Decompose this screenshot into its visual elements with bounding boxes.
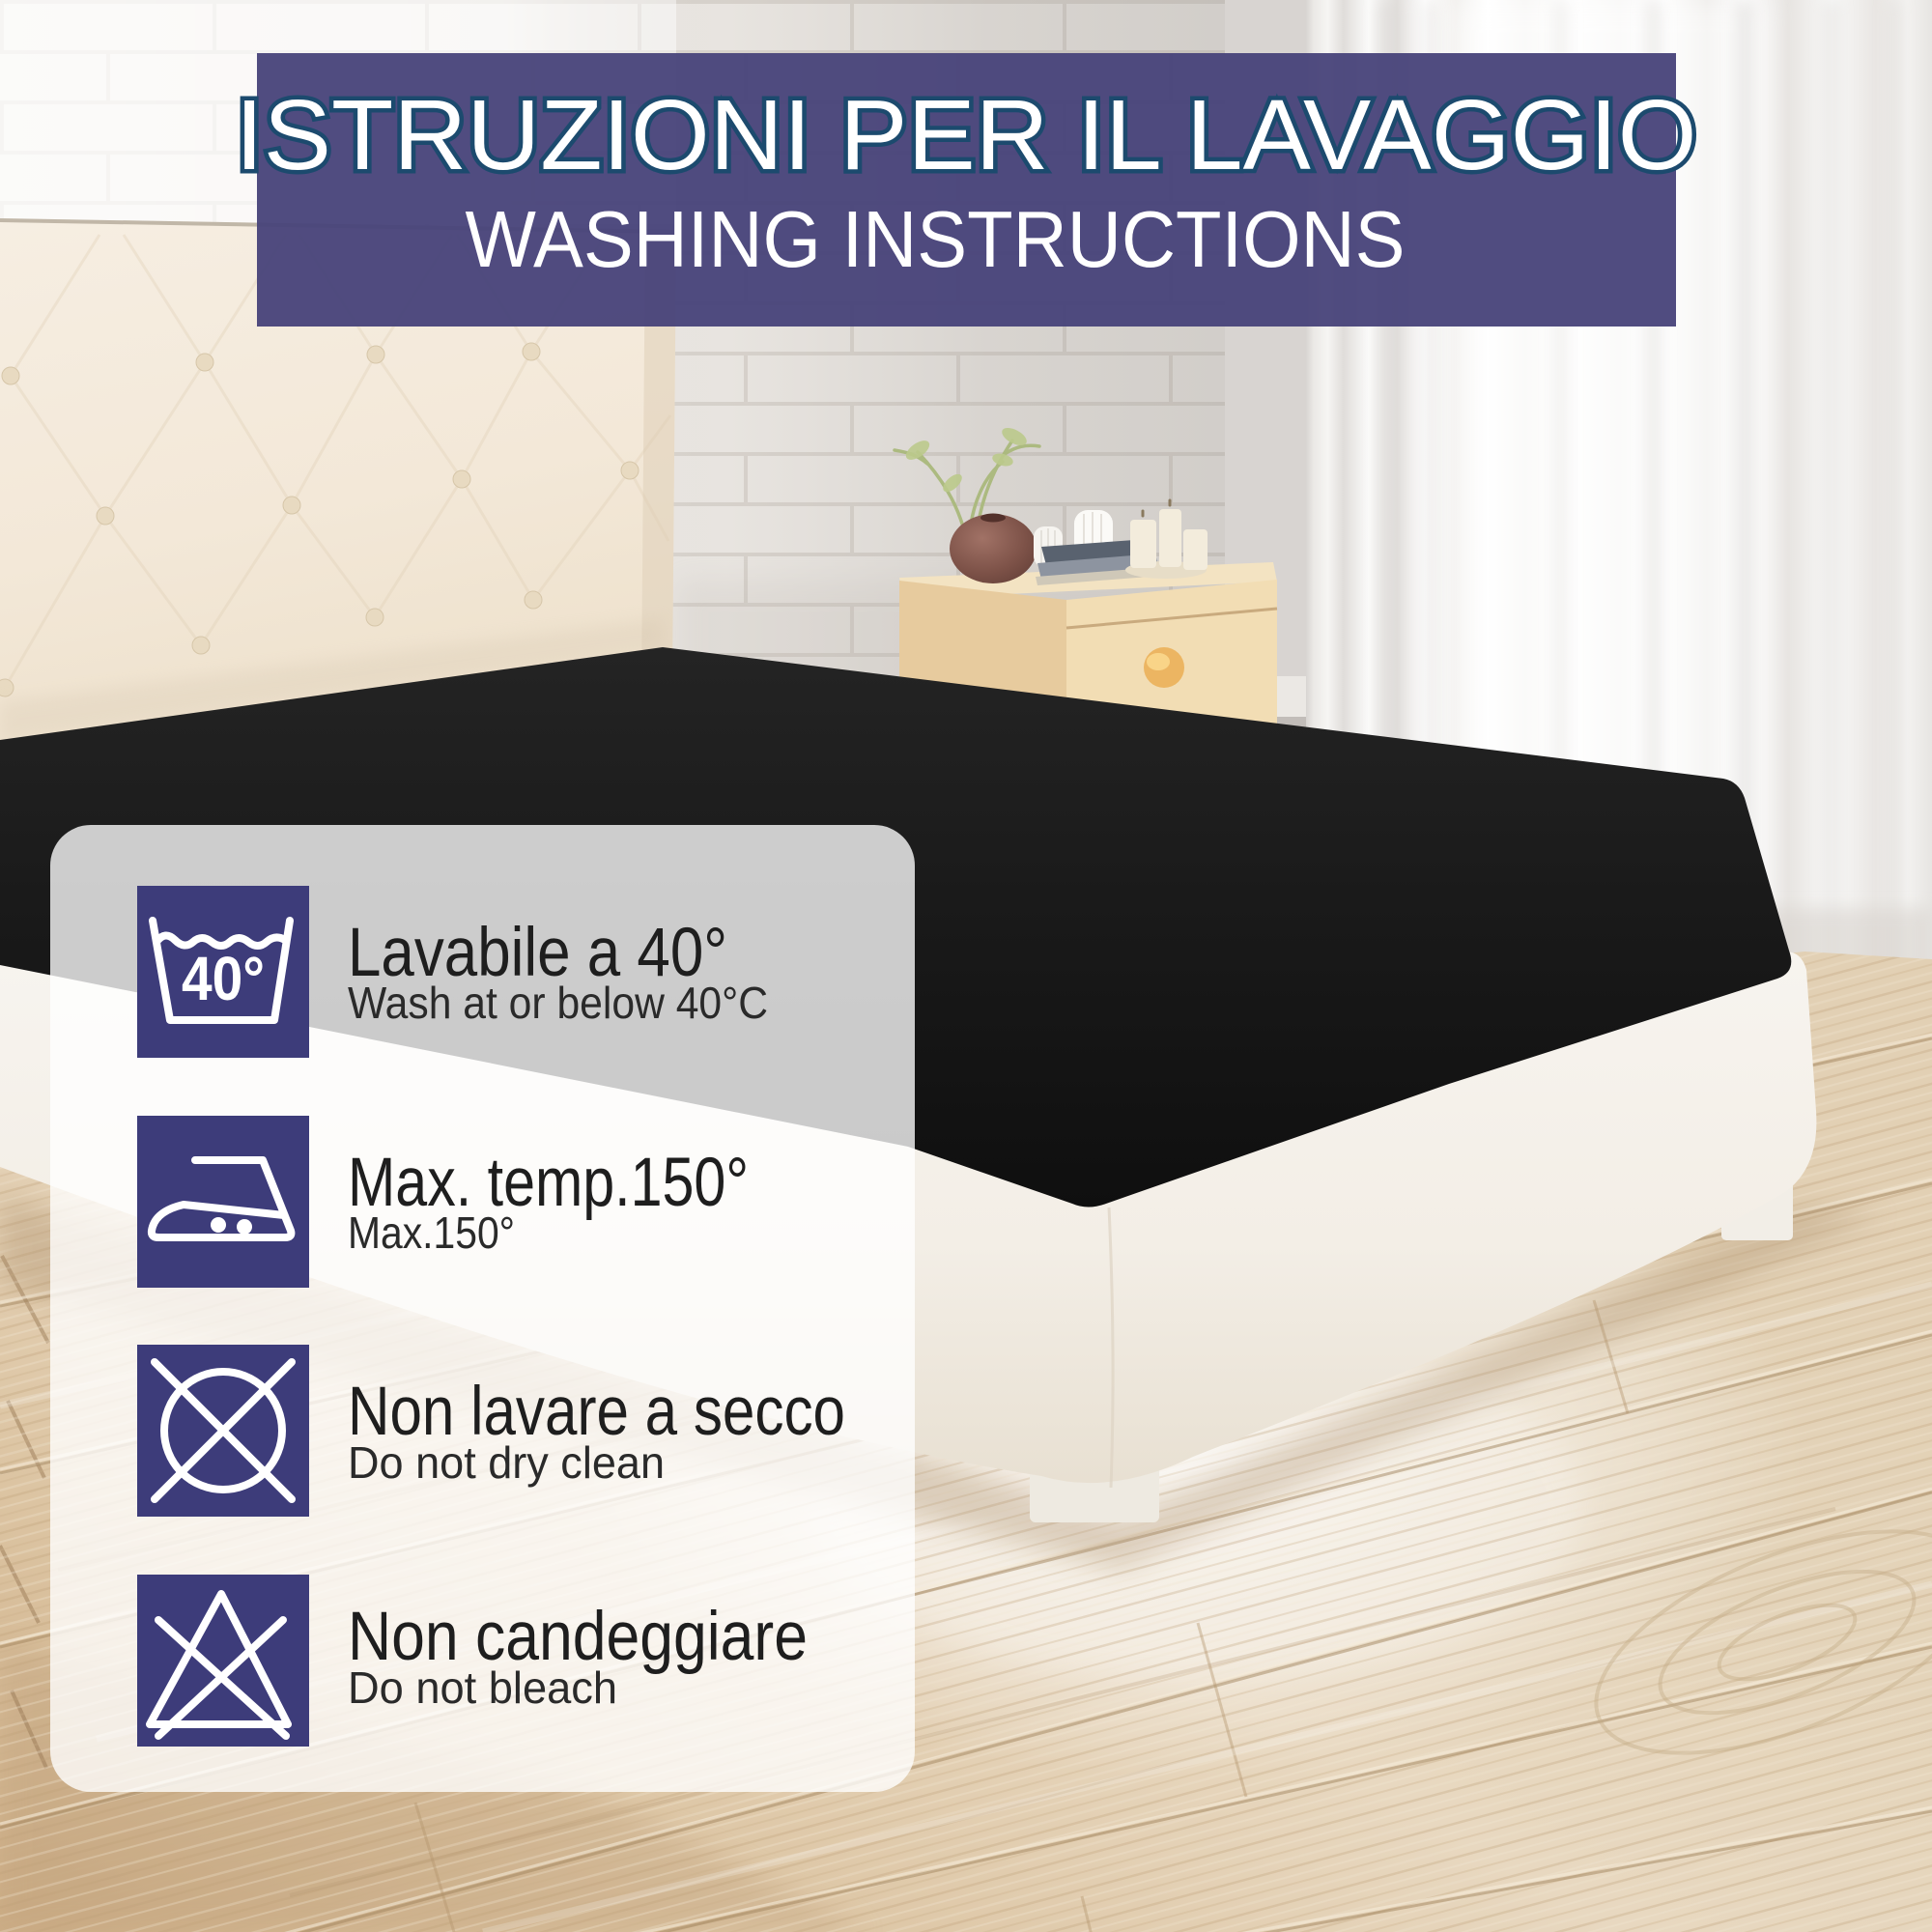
svg-text:40°: 40° bbox=[182, 944, 265, 1013]
svg-text:Wash at or below 40°C: Wash at or below 40°C bbox=[348, 978, 768, 1028]
svg-text:Do not bleach: Do not bleach bbox=[348, 1662, 617, 1713]
svg-text:WASHING INSTRUCTIONS: WASHING INSTRUCTIONS bbox=[466, 194, 1406, 284]
svg-text:Do not dry clean: Do not dry clean bbox=[348, 1437, 665, 1488]
svg-text:ISTRUZIONI PER IL LAVAGGIO: ISTRUZIONI PER IL LAVAGGIO bbox=[236, 79, 1697, 190]
svg-text:Max.150°: Max.150° bbox=[348, 1207, 515, 1258]
